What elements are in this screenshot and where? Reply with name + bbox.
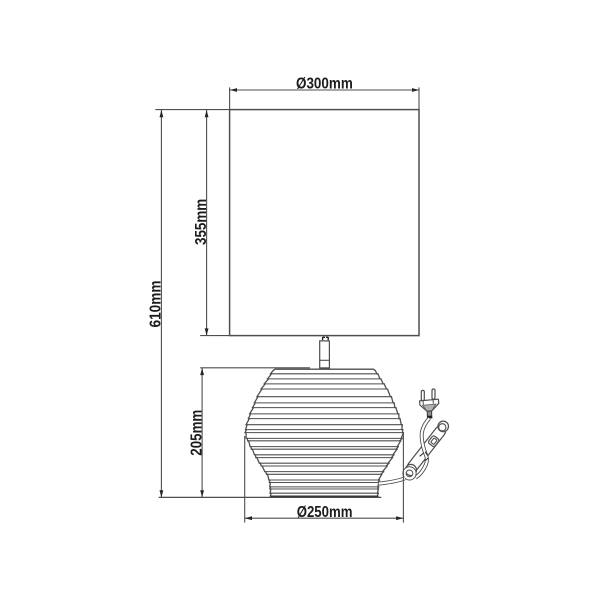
svg-text:Ø250mm: Ø250mm: [297, 504, 353, 521]
svg-text:Ø300mm: Ø300mm: [296, 76, 353, 93]
svg-text:610mm: 610mm: [148, 281, 165, 328]
svg-text:205mm: 205mm: [188, 410, 205, 456]
svg-text:355mm: 355mm: [193, 199, 210, 245]
